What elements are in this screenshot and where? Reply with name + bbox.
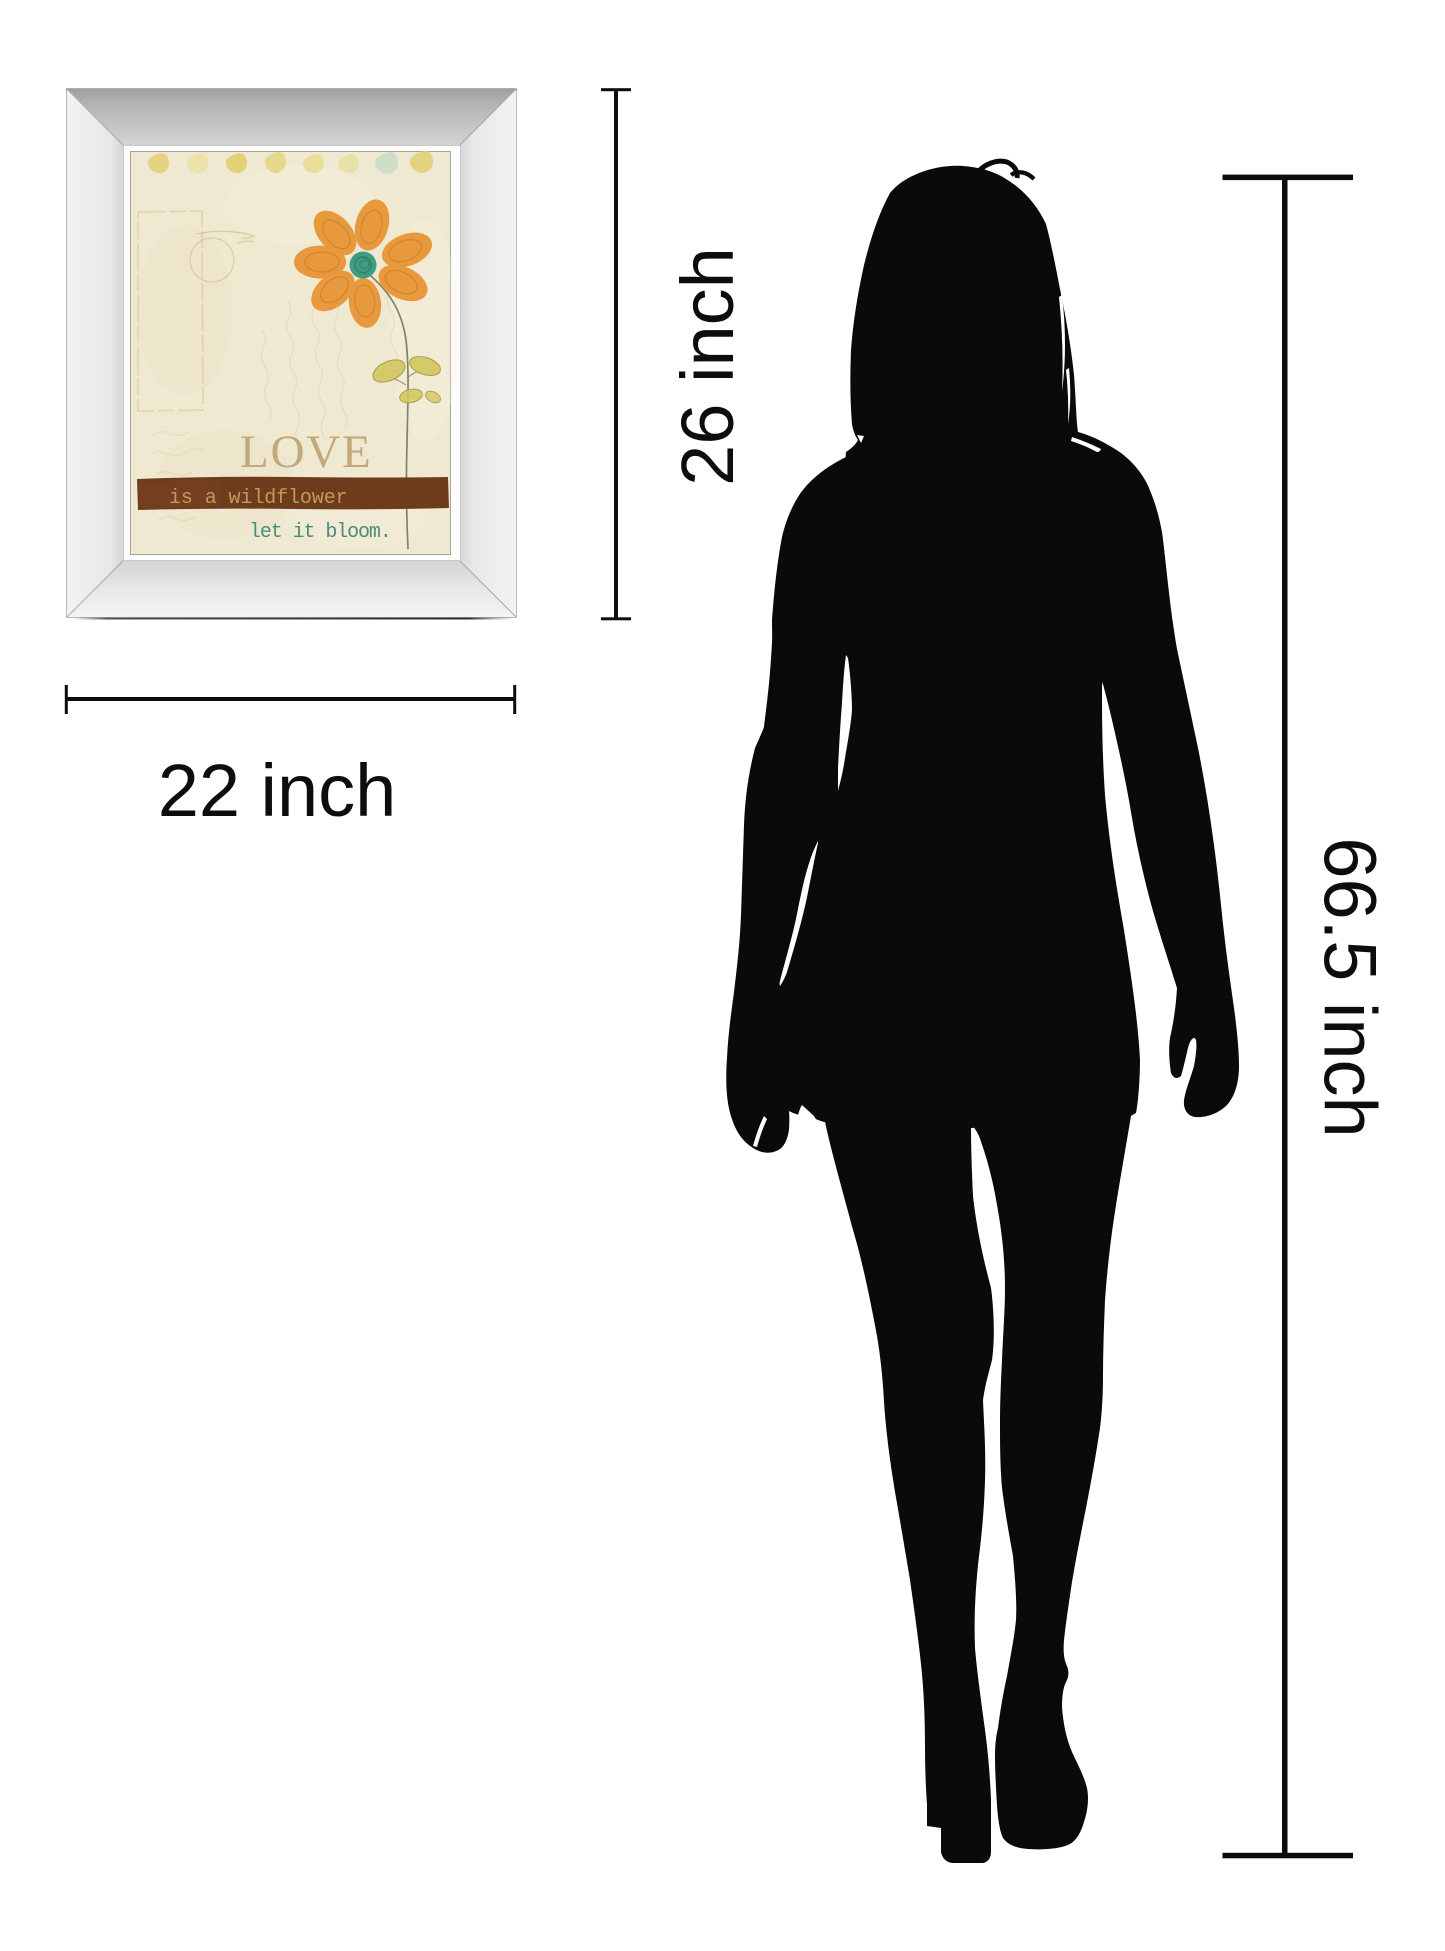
svg-text:let it bloom.: let it bloom. bbox=[249, 521, 391, 544]
svg-text:22 inch: 22 inch bbox=[158, 749, 397, 832]
svg-text:66.5 inch: 66.5 inch bbox=[1309, 837, 1392, 1137]
svg-text:LOVE: LOVE bbox=[240, 426, 373, 478]
svg-text:26 inch: 26 inch bbox=[666, 247, 749, 486]
svg-text:is a wildflower: is a wildflower bbox=[169, 487, 348, 510]
